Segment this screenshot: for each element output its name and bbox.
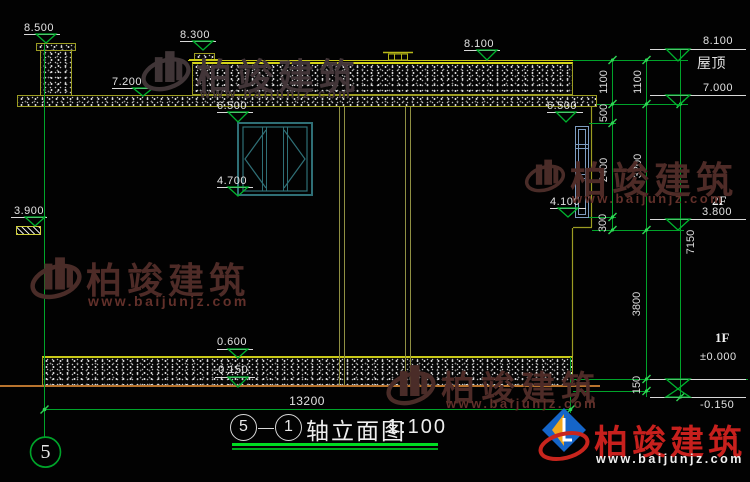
dim-overall-height: 7150 (685, 230, 697, 254)
level-window-center-top: 6.500 (217, 100, 247, 112)
level-chimney-top: 8.500 (24, 22, 54, 34)
right-level-roof: 7.000 (703, 82, 733, 94)
level-ground-left: -0.150 (214, 364, 248, 376)
watermark-logo-icon (385, 360, 437, 408)
dim-b1: 1100 (632, 70, 644, 94)
level-roof-left: 7.200 (112, 76, 142, 88)
level-parapet-left: 8.300 (180, 29, 210, 41)
watermark-logo-icon (29, 252, 83, 302)
right-level-2f: 3.800 (702, 206, 732, 218)
title-axis-to: 1 (275, 414, 302, 441)
dim-a2: 500 (598, 104, 610, 122)
level-window-center-bottom: 4.700 (217, 175, 247, 187)
brand-logo-icon (538, 406, 590, 472)
dim-a1: 1100 (598, 70, 610, 94)
level-plinth-top: 0.600 (217, 336, 247, 348)
level-roof-center: 8.100 (464, 38, 494, 50)
right-label-roof: 屋顶 (697, 53, 726, 73)
brand-url: www.baijunjz.com (596, 452, 744, 466)
level-canopy-left: 3.900 (14, 205, 44, 217)
title-axis-from: 5 (230, 414, 257, 441)
right-level-1f: ±0.000 (700, 351, 737, 363)
cad-elevation-drawing: 8.500 8.300 7.200 8.100 6.500 4.700 3.90… (0, 0, 750, 482)
level-window-right-top: 6.500 (547, 100, 577, 112)
watermark-url: www.baijunjz.com (200, 86, 352, 101)
watermark-url: www.baijunjz.com (572, 191, 724, 206)
right-label-1f: 1F (715, 330, 729, 346)
watermark-logo-icon (524, 149, 566, 201)
dim-a4: 300 (597, 214, 609, 232)
watermark-url: www.baijunjz.com (88, 293, 249, 309)
drawing-scale: 1:100 (387, 416, 447, 439)
right-level-parapet: 8.100 (703, 35, 733, 47)
dim-b4: 150 (631, 376, 643, 394)
axis-bubble-5: 5 (30, 437, 61, 468)
watermark-logo-icon (140, 46, 192, 94)
dim-overall-width: 13200 (289, 394, 325, 408)
right-level-ground: -0.150 (700, 399, 734, 411)
dim-b3: 3800 (631, 292, 643, 316)
